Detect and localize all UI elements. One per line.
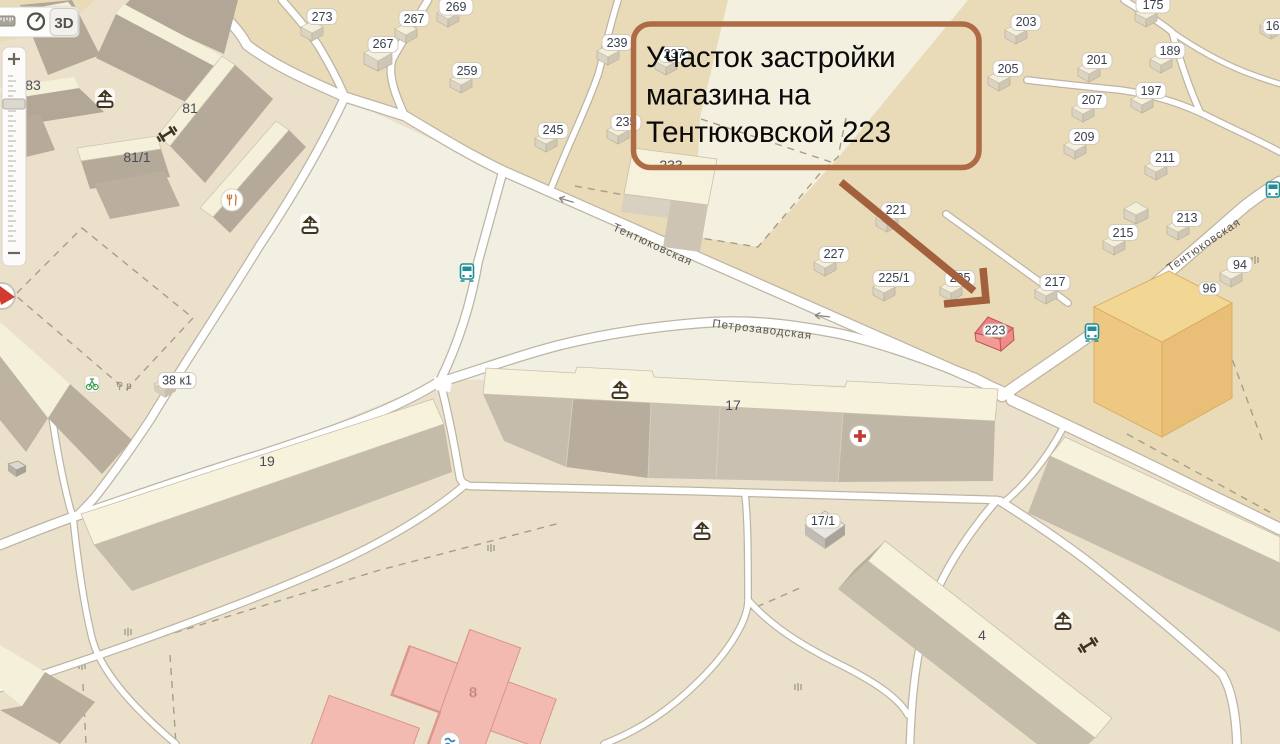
svg-text:96: 96	[1203, 282, 1217, 296]
svg-text:197: 197	[1141, 84, 1162, 98]
svg-text:83: 83	[25, 77, 41, 93]
svg-text:239: 239	[607, 36, 628, 50]
svg-text:94: 94	[1233, 258, 1247, 272]
svg-text:269: 269	[446, 0, 467, 14]
svg-text:205: 205	[998, 62, 1019, 76]
svg-text:221: 221	[886, 203, 907, 217]
svg-text:273: 273	[312, 10, 333, 24]
svg-text:223: 223	[985, 324, 1006, 338]
svg-text:19: 19	[259, 453, 275, 469]
svg-text:магазина на: магазина на	[646, 79, 811, 112]
svg-text:⚲ р: ⚲ р	[116, 381, 132, 392]
svg-text:245: 245	[543, 123, 564, 137]
svg-text:267: 267	[404, 12, 425, 26]
svg-text:211: 211	[1155, 151, 1175, 165]
svg-text:203: 203	[1016, 15, 1037, 29]
svg-text:267: 267	[373, 37, 394, 51]
svg-text:207: 207	[1082, 93, 1103, 107]
svg-text:217: 217	[1045, 275, 1066, 289]
svg-text:4: 4	[978, 627, 986, 643]
svg-text:81: 81	[182, 100, 198, 116]
svg-text:17: 17	[725, 397, 741, 413]
svg-text:189: 189	[1160, 44, 1181, 58]
svg-text:Тентюковской 223: Тентюковской 223	[646, 116, 891, 149]
svg-text:3D: 3D	[54, 15, 73, 32]
svg-text:161: 161	[1266, 19, 1280, 33]
svg-text:17/1: 17/1	[811, 514, 835, 528]
svg-text:213: 213	[1177, 211, 1198, 225]
svg-text:8: 8	[469, 684, 477, 700]
svg-text:225/1: 225/1	[878, 271, 909, 285]
svg-text:201: 201	[1087, 53, 1108, 67]
svg-text:259: 259	[457, 64, 478, 78]
svg-text:209: 209	[1074, 130, 1095, 144]
svg-text:38 к1: 38 к1	[162, 374, 192, 388]
svg-text:227: 227	[824, 247, 845, 261]
svg-text:Участок застройки: Участок застройки	[646, 41, 895, 74]
svg-text:81/1: 81/1	[123, 149, 150, 165]
svg-text:175: 175	[1143, 0, 1164, 12]
svg-text:215: 215	[1113, 226, 1134, 240]
